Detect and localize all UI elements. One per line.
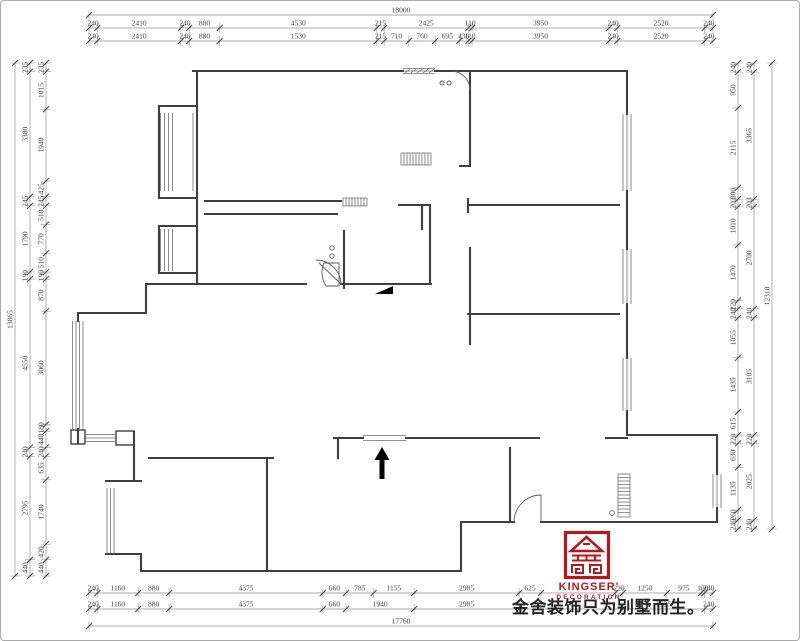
- dim-label: 13865: [6, 310, 15, 329]
- dim-label: 2795: [21, 500, 30, 515]
- dim-chain: 2409502115300203101014702202401055143561…: [729, 60, 744, 532]
- dim-label: 420: [37, 546, 46, 558]
- kingser-seal-logo: [566, 533, 609, 578]
- dim-label: 1015: [37, 83, 46, 98]
- dim-label: 240: [88, 19, 100, 28]
- dim-label: 215: [375, 32, 387, 41]
- dim-label: 785: [354, 584, 366, 593]
- dim-label: 950: [729, 84, 738, 96]
- dim-label: 870: [37, 289, 46, 301]
- dim-label: 2520: [654, 32, 669, 41]
- brand-slogan: 金舍装饰只为别墅而生。: [512, 593, 772, 618]
- dim-label: 110: [465, 19, 476, 28]
- dim-label: 1790: [21, 231, 30, 246]
- dim-chain-total: 13865: [6, 60, 21, 579]
- dim-label: 1155: [387, 584, 402, 593]
- dim-label: 2985: [459, 584, 474, 593]
- dim-label: 240: [608, 19, 620, 28]
- dim-label: 240: [37, 446, 46, 458]
- dim-chain-total: 12310: [763, 60, 778, 532]
- dim-label: 1740: [37, 504, 46, 519]
- dim-chain-total: 17760: [86, 617, 716, 632]
- dim-label: 1010: [729, 218, 738, 233]
- dim-label: 4550: [21, 356, 30, 371]
- dim-label: 235: [37, 61, 46, 73]
- section-triangle: [375, 286, 393, 294]
- dim-label: 240: [729, 307, 738, 319]
- dim-label: 630: [729, 449, 738, 461]
- dim-label: 3950: [533, 19, 548, 28]
- dim-label: 2700: [745, 250, 754, 265]
- dim-label: 12310: [763, 286, 772, 305]
- dimension-ring: 1800024024102408804530215242511039502402…: [6, 6, 778, 632]
- dim-label: 110: [465, 32, 476, 41]
- dim-label: 695: [442, 32, 454, 41]
- dim-label: 510: [37, 257, 46, 269]
- dim-label: 625: [524, 584, 536, 593]
- wall-lines: [71, 71, 717, 571]
- dim-label: 3950: [533, 32, 548, 41]
- floor-plan-sheet: 1800024024102408804530215242511039502402…: [0, 0, 800, 641]
- door-arcs: [316, 71, 614, 522]
- dim-label: 975: [678, 584, 690, 593]
- dim-label: 510: [37, 209, 46, 221]
- floor-plan-canvas: 1800024024102408804530215242511039502402…: [1, 1, 799, 640]
- dim-label: 240: [703, 584, 715, 593]
- dim-label: 880: [199, 19, 211, 28]
- dim-label: 18000: [392, 6, 411, 15]
- dim-label: 240: [729, 62, 738, 74]
- dim-label: 220: [729, 433, 738, 445]
- dim-label: 440: [37, 433, 46, 445]
- dim-label: 2425: [419, 19, 434, 28]
- dim-label: 245: [37, 195, 46, 207]
- dim-label: 240: [179, 32, 191, 41]
- dim-label: 880: [199, 32, 211, 41]
- dim-label: 1055: [729, 330, 738, 345]
- dim-label: 880: [148, 584, 160, 593]
- dim-label: 660: [329, 584, 341, 593]
- dim-label: 1160: [110, 584, 125, 593]
- dim-label: 1160: [110, 600, 125, 609]
- dim-label: 3060: [37, 360, 46, 375]
- dim-label: 240: [703, 19, 715, 28]
- dim-label: 235: [21, 61, 30, 73]
- dim-label: 615: [729, 418, 738, 430]
- dim-label: 240: [88, 600, 100, 609]
- dim-label: 760: [416, 32, 428, 41]
- dim-label: 1940: [373, 600, 388, 609]
- stair-hatch: [343, 153, 630, 517]
- dim-chain: 2353380245179019045502402795440: [21, 60, 36, 579]
- dim-chain: 2402410240880153021571076069543011039502…: [86, 32, 716, 47]
- dim-label: 17760: [392, 617, 411, 626]
- dim-label: 2410: [132, 19, 147, 28]
- dim-label: 240: [745, 519, 754, 531]
- dim-label: 3365: [745, 128, 754, 143]
- dim-label: 4375: [238, 584, 253, 593]
- dim-label: 180: [37, 422, 46, 434]
- dim-label: 1135: [729, 481, 738, 496]
- dim-label: 2115: [729, 140, 738, 155]
- dim-label: 203: [745, 197, 754, 209]
- dim-label: 240: [608, 32, 620, 41]
- entry-arrow: [375, 447, 390, 479]
- dim-chain: 2403365203270024031052202025240: [745, 60, 760, 532]
- dim-label: 240: [21, 446, 30, 458]
- dim-label: 2985: [459, 600, 474, 609]
- dim-label: 2410: [132, 32, 147, 41]
- dim-label: 660: [329, 600, 341, 609]
- dim-label: 440: [21, 562, 30, 574]
- dim-label: 190: [37, 270, 46, 282]
- dim-label: 4530: [291, 19, 306, 28]
- dim-label: 3105: [745, 369, 754, 384]
- dim-label: 1250: [637, 584, 652, 593]
- dim-label: 1530: [291, 32, 306, 41]
- dim-label: 215: [375, 19, 387, 28]
- dim-label: 245: [21, 195, 30, 207]
- dim-label: 425: [37, 183, 46, 195]
- dim-label: 4375: [238, 600, 253, 609]
- dim-label: 2520: [654, 19, 669, 28]
- dim-label: 2025: [745, 474, 754, 489]
- dim-label: 1435: [729, 377, 738, 392]
- dim-label: 770: [37, 233, 46, 245]
- dim-label: 220: [745, 433, 754, 445]
- dim-label: 240: [88, 32, 100, 41]
- dim-label: 1940: [37, 137, 46, 152]
- dim-label: 710: [391, 32, 403, 41]
- dim-label: 880: [148, 600, 160, 609]
- dim-label: 3380: [21, 126, 30, 141]
- dim-label: 240: [745, 307, 754, 319]
- dim-label: 1470: [729, 265, 738, 280]
- dim-label: 635: [37, 462, 46, 474]
- dim-label: 240: [745, 62, 754, 74]
- dim-label: 240: [88, 584, 100, 593]
- brand-name: KINGSER': [541, 582, 637, 593]
- dim-label: 240: [703, 32, 715, 41]
- dim-label: 203: [729, 197, 738, 209]
- dim-label: 440: [37, 562, 46, 574]
- dim-label: 240: [179, 19, 191, 28]
- dim-label: 190: [21, 270, 30, 282]
- dim-label: 240: [729, 519, 738, 531]
- dim-chain: 2351015194042524551077051019087030601804…: [37, 60, 52, 579]
